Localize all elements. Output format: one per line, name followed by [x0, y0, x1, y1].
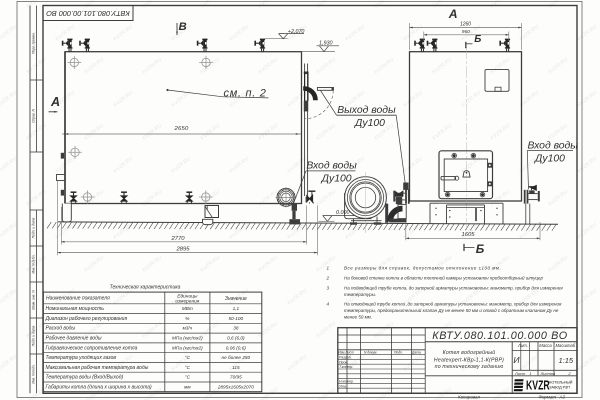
svg-text:температуры.: температуры. — [344, 292, 376, 297]
svg-text:Б: Б — [474, 34, 481, 45]
svg-text:А3: А3 — [559, 395, 566, 400]
svg-text:Б: Б — [476, 242, 485, 256]
svg-text:1:15: 1:15 — [558, 356, 573, 365]
svg-text:2895: 2895 — [175, 247, 190, 253]
svg-text:2770: 2770 — [170, 236, 185, 242]
svg-text:по техническому заданию: по техническому заданию — [435, 364, 504, 370]
svg-text:N докум.: N докум. — [364, 351, 377, 355]
svg-text:ЗАВОД РЗП: ЗАВОД РЗП — [549, 386, 570, 390]
svg-text:Все размеры для справок, допус: Все размеры для справок, допустимое откл… — [344, 266, 501, 271]
svg-text:Единицы: Единицы — [177, 293, 198, 299]
svg-text:МВт: МВт — [182, 306, 193, 311]
svg-text:1,1: 1,1 — [233, 306, 240, 311]
svg-text:КВТУ.080.101.00.000 ВО: КВТУ.080.101.00.000 ВО — [432, 330, 568, 342]
svg-text:Масштаб: Масштаб — [556, 343, 576, 348]
svg-text:1: 1 — [529, 371, 531, 376]
svg-text:Диапазон рабочего регулировани: Диапазон рабочего регулирования — [45, 316, 128, 322]
svg-text:Температура уходящих газов: Температура уходящих газов — [46, 355, 117, 361]
svg-text:Наименование показателя: Наименование показателя — [46, 296, 110, 302]
svg-text:Масса: Масса — [539, 343, 552, 348]
svg-text:+2,070: +2,070 — [288, 29, 305, 35]
svg-text:Heatexpert-КВр-1,1-К(РВР): Heatexpert-КВр-1,1-К(РВР) — [434, 357, 504, 363]
svg-text:Температура воды (Вход/Выход): Температура воды (Вход/Выход) — [46, 375, 124, 381]
svg-text:Копировал: Копировал — [458, 395, 480, 400]
svg-text:А: А — [50, 95, 60, 109]
svg-text:КОТЕЛЬНЫЙ: КОТЕЛЬНЫЙ — [549, 381, 572, 385]
svg-text:Изм.Лист: Изм.Лист — [338, 351, 354, 355]
svg-text:Пров.: Пров. — [339, 360, 348, 364]
svg-text:1260: 1260 — [460, 21, 471, 27]
svg-text:не более 250: не более 250 — [222, 355, 251, 360]
svg-text:Н.контр.: Н.контр. — [339, 380, 354, 384]
svg-text:°С: °С — [185, 355, 191, 360]
svg-text:Инв. N подл.: Инв. N подл. — [32, 364, 36, 383]
svg-text:Листов: Листов — [540, 371, 556, 376]
svg-text:МПа (кгс/см2): МПа (кгс/см2) — [172, 336, 203, 341]
svg-text:Техническая характеристика: Техническая характеристика — [110, 285, 181, 291]
svg-text:Формат: Формат — [539, 395, 557, 400]
svg-text:2: 2 — [326, 276, 330, 281]
svg-text:Подп. и дата: Подп. и дата — [32, 218, 36, 239]
svg-text:Расход воды: Расход воды — [46, 326, 76, 332]
svg-text:960: 960 — [462, 29, 470, 35]
svg-text:Ду100: Ду100 — [534, 153, 565, 164]
svg-text:Лист: Лист — [514, 371, 526, 376]
svg-text:°С: °С — [185, 365, 191, 370]
svg-text:Гидравлическое сопротивление к: Гидравлическое сопротивление котла — [46, 345, 138, 351]
svg-text:Т.контр.: Т.контр. — [339, 365, 353, 369]
svg-text:%: % — [185, 316, 189, 321]
svg-text:Лит.: Лит. — [517, 343, 528, 348]
svg-text:менее 50 мм.: менее 50 мм. — [344, 314, 372, 319]
svg-text:Значение: Значение — [225, 296, 247, 302]
svg-text:МПа (кгс/см2): МПа (кгс/см2) — [172, 345, 203, 350]
svg-text:А: А — [448, 7, 458, 21]
svg-text:Взам. инв. N: Взам. инв. N — [32, 290, 36, 310]
svg-text:м3/ч: м3/ч — [183, 326, 193, 331]
svg-text:Номинальная мощность: Номинальная мощность — [46, 306, 105, 312]
svg-text:На отводящей трубе котла ,до з: На отводящей трубе котла ,до запорной ар… — [344, 301, 562, 307]
svg-text:температуры, предохранительный: температуры, предохранительный клапан Ду… — [344, 307, 559, 313]
svg-text:Перв. примен.: Перв. примен. — [32, 32, 36, 54]
svg-text:На подводящей трубе котла, д: На подводящей трубе котла, до запорной а… — [344, 284, 563, 290]
svg-text:Инв. N дубл.: Инв. N дубл. — [32, 254, 36, 273]
svg-text:0,6 (6,0): 0,6 (6,0) — [227, 336, 245, 341]
svg-text:Вход воды: Вход воды — [306, 161, 357, 172]
svg-text:1,930: 1,930 — [319, 40, 333, 46]
svg-text:Утв.: Утв. — [339, 384, 347, 388]
svg-text:0.000: 0.000 — [336, 210, 350, 216]
svg-text:0,06 (0,6): 0,06 (0,6) — [226, 345, 247, 350]
svg-text:2895х1605х2070: 2895х1605х2070 — [217, 384, 254, 389]
svg-text:И: И — [513, 355, 520, 365]
svg-text:мм: мм — [184, 384, 191, 389]
svg-text:Вход воды: Вход воды — [528, 141, 579, 152]
svg-text:Максимальная рабочая температу: Максимальная рабочая температура воды — [46, 365, 149, 371]
svg-text:измерения: измерения — [175, 300, 199, 305]
svg-text:На боковой стенке котла в обла: На боковой стенке котла в области топочн… — [344, 275, 543, 281]
svg-text:Дата: Дата — [411, 351, 421, 355]
svg-text:Выход воды: Выход воды — [337, 105, 396, 116]
svg-text:38: 38 — [233, 326, 239, 331]
svg-text:KVZR: KVZR — [526, 379, 550, 393]
svg-text:Справ. N: Справ. N — [32, 108, 36, 122]
svg-text:70/95: 70/95 — [230, 375, 242, 380]
svg-text:Рабочее давление воды: Рабочее давление воды — [46, 336, 102, 342]
svg-text:Ду100: Ду100 — [321, 174, 352, 185]
svg-text:2650: 2650 — [173, 126, 189, 132]
svg-text:Подп.: Подп. — [394, 351, 403, 355]
svg-text:Ду100: Ду100 — [354, 118, 385, 129]
svg-text:°С: °С — [185, 375, 191, 380]
svg-text:115: 115 — [232, 365, 240, 370]
svg-text:Подп. и дата: Подп. и дата — [32, 326, 36, 347]
svg-text:50-100: 50-100 — [229, 316, 244, 321]
svg-text:Габариты котла (длина х ширина: Габариты котла (длина х ширина х высота) — [46, 384, 153, 390]
svg-text:В: В — [179, 21, 187, 33]
svg-text:Котел водогрейный: Котел водогрейный — [443, 349, 496, 356]
svg-text:1605: 1605 — [461, 232, 475, 238]
svg-text:см. п. 2: см. п. 2 — [224, 87, 267, 99]
svg-text:Разраб.: Разраб. — [339, 356, 352, 360]
svg-text:КВТУ.080.101.00.000 ВО: КВТУ.080.101.00.000 ВО — [46, 9, 130, 18]
